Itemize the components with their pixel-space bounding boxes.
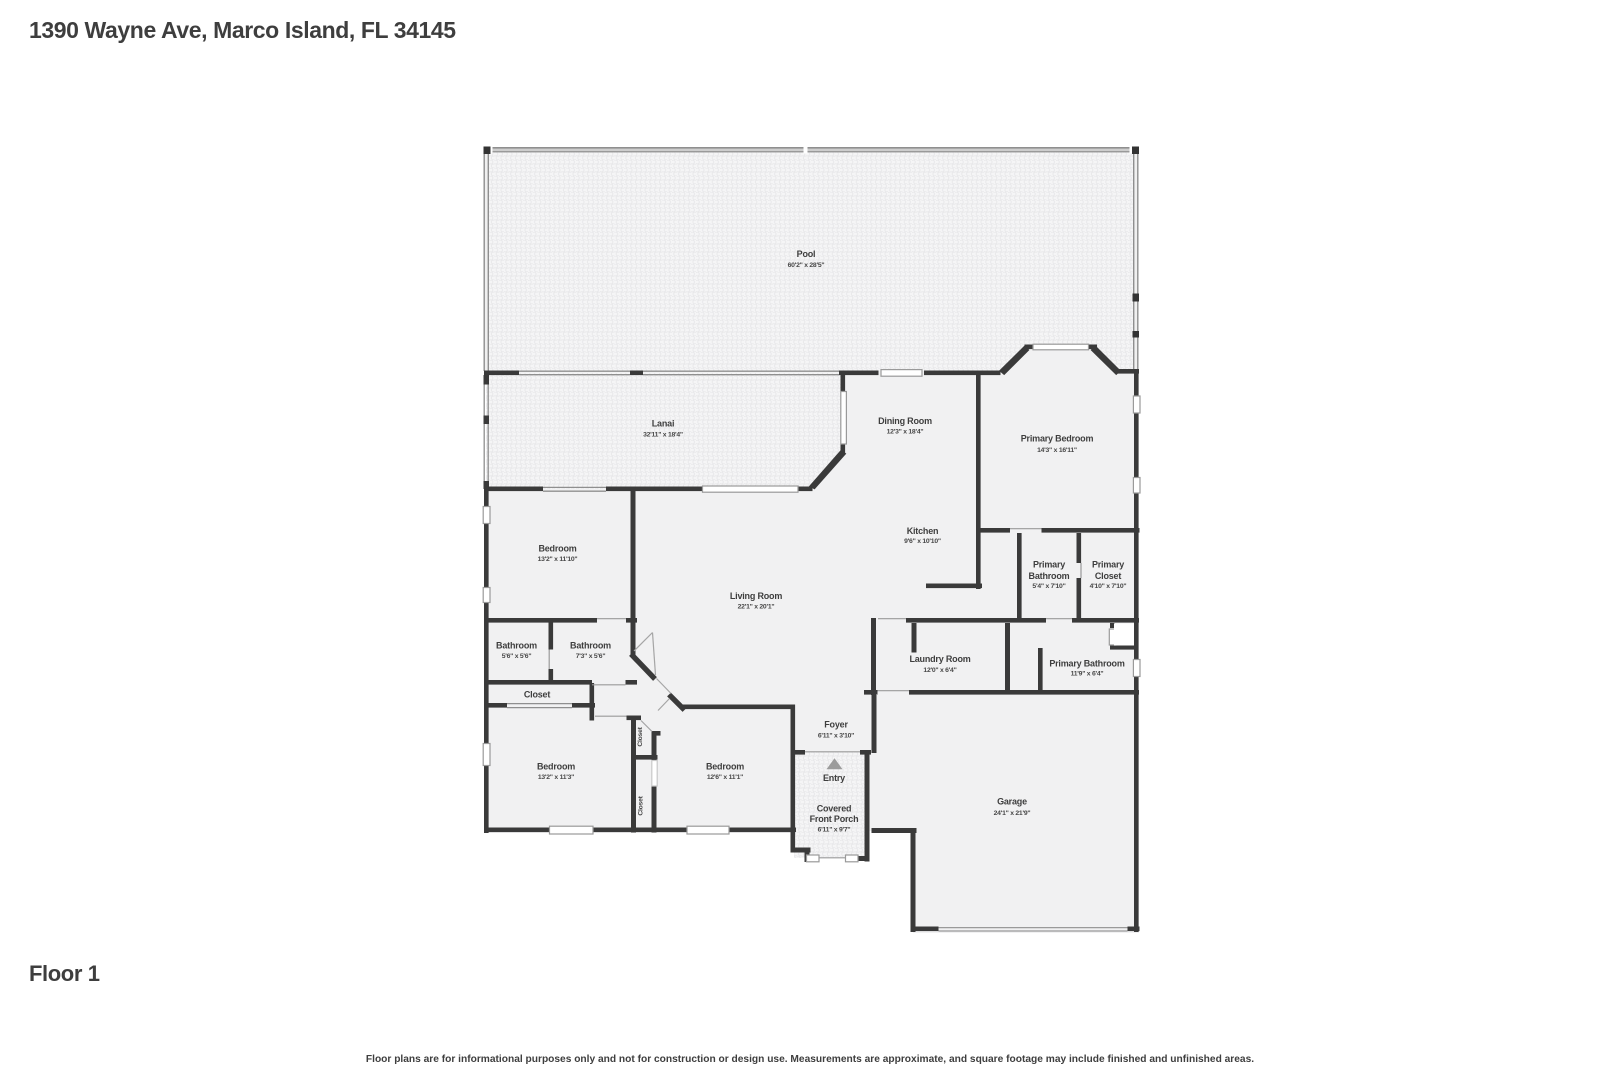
- svg-text:Entry: Entry: [823, 773, 845, 783]
- svg-text:Covered: Covered: [817, 804, 852, 814]
- svg-text:5'6" x 5'6": 5'6" x 5'6": [502, 653, 532, 660]
- svg-text:Pool: Pool: [797, 249, 816, 259]
- svg-text:Closet: Closet: [1095, 571, 1122, 581]
- svg-text:Living Room: Living Room: [730, 591, 782, 601]
- svg-text:Bedroom: Bedroom: [706, 762, 744, 772]
- svg-text:14'3" x 16'11": 14'3" x 16'11": [1037, 447, 1077, 454]
- svg-text:12'3" x 18'4": 12'3" x 18'4": [887, 429, 924, 436]
- svg-text:5'4" x 7'10": 5'4" x 7'10": [1032, 583, 1065, 590]
- svg-text:32'11" x 18'4": 32'11" x 18'4": [643, 432, 683, 439]
- svg-text:Lanai: Lanai: [652, 419, 675, 429]
- svg-text:Laundry Room: Laundry Room: [909, 654, 970, 664]
- svg-text:Primary: Primary: [1033, 560, 1065, 570]
- svg-text:Bathroom: Bathroom: [570, 641, 611, 651]
- svg-text:60'2" x 28'5": 60'2" x 28'5": [788, 262, 825, 269]
- svg-text:Dining Room: Dining Room: [878, 416, 932, 426]
- svg-text:12'6" x 11'1": 12'6" x 11'1": [707, 774, 743, 781]
- svg-text:Closet: Closet: [638, 795, 645, 815]
- svg-text:Front Porch: Front Porch: [810, 814, 859, 824]
- svg-text:Primary Bathroom: Primary Bathroom: [1049, 659, 1125, 669]
- svg-text:Primary: Primary: [1092, 560, 1124, 570]
- svg-text:Primary Bedroom: Primary Bedroom: [1021, 434, 1094, 444]
- svg-text:Foyer: Foyer: [824, 720, 848, 730]
- svg-text:Floor 1: Floor 1: [29, 961, 100, 986]
- svg-text:Garage: Garage: [997, 797, 1027, 807]
- svg-text:6'11" x 3'10": 6'11" x 3'10": [818, 733, 854, 740]
- svg-text:Bathroom: Bathroom: [496, 641, 537, 651]
- svg-text:Closet: Closet: [637, 726, 644, 746]
- svg-text:Floor plans are for informatio: Floor plans are for informational purpos…: [366, 1054, 1254, 1065]
- svg-text:4'10" x 7'10": 4'10" x 7'10": [1090, 583, 1127, 590]
- svg-text:1390 Wayne Ave, Marco Island,: 1390 Wayne Ave, Marco Island, FL 34145: [29, 17, 456, 43]
- svg-text:12'0" x 6'4": 12'0" x 6'4": [923, 667, 956, 674]
- svg-text:6'11" x 9'7": 6'11" x 9'7": [818, 827, 851, 834]
- svg-text:Kitchen: Kitchen: [907, 526, 939, 536]
- svg-text:22'1" x 20'1": 22'1" x 20'1": [738, 604, 775, 611]
- svg-text:Bedroom: Bedroom: [538, 544, 576, 554]
- svg-text:13'2" x 11'10": 13'2" x 11'10": [538, 556, 578, 563]
- svg-text:Closet: Closet: [524, 690, 551, 700]
- svg-text:Bedroom: Bedroom: [537, 762, 575, 772]
- svg-text:11'9" x 6'4": 11'9" x 6'4": [1071, 671, 1104, 678]
- svg-text:7'3" x 5'6": 7'3" x 5'6": [576, 653, 606, 660]
- svg-text:13'2" x 11'3": 13'2" x 11'3": [538, 774, 574, 781]
- svg-text:Bathroom: Bathroom: [1029, 571, 1070, 581]
- svg-text:24'1" x 21'9": 24'1" x 21'9": [994, 810, 1031, 817]
- svg-text:9'6" x 10'10": 9'6" x 10'10": [904, 538, 941, 545]
